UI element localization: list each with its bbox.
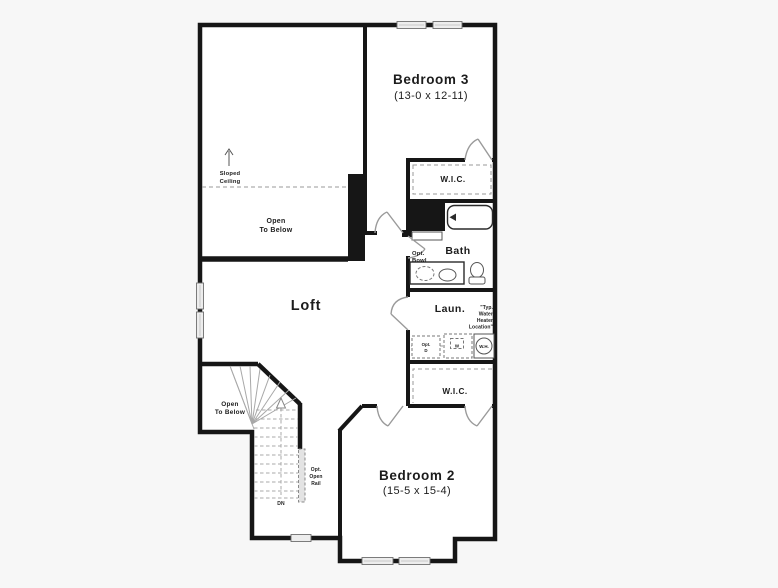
open-to-below-lower-2: To Below bbox=[215, 409, 245, 416]
bedroom3-dims: (13-0 x 12-11) bbox=[394, 90, 468, 102]
bedroom2-label: Bedroom 2 bbox=[379, 468, 455, 483]
laundry-fixtures: Opt. D W W.H. bbox=[411, 334, 494, 358]
floor-plan-page: DN Opt. D W W.H. bbox=[0, 0, 778, 588]
stair-down-label: DN bbox=[277, 501, 285, 507]
bath-label: Bath bbox=[445, 245, 470, 257]
floor-plan-image: DN Opt. D W W.H. bbox=[0, 0, 778, 588]
stair-rail bbox=[299, 449, 306, 502]
laundry-label: Laun. bbox=[435, 303, 466, 315]
opt-bowl-label-1: Opt. bbox=[412, 251, 425, 257]
linen-shelf bbox=[412, 232, 442, 240]
water-heater-note-4: Location" bbox=[469, 325, 494, 331]
water-heater-note-1: "Typ. bbox=[480, 305, 493, 311]
open-to-below-upper-1: Open bbox=[266, 218, 285, 225]
opt-dryer-label-2: D bbox=[424, 348, 427, 353]
wall-chase bbox=[348, 174, 365, 261]
bedroom3-label: Bedroom 3 bbox=[393, 72, 469, 87]
water-heater-label: W.H. bbox=[479, 344, 489, 349]
opt-bowl-label-2: Bowl bbox=[412, 258, 427, 264]
toilet bbox=[469, 263, 485, 285]
opt-dryer-label-1: Opt. bbox=[422, 342, 431, 347]
open-to-below-lower-1: Open bbox=[221, 401, 239, 408]
bedroom2-dims: (15-5 x 15-4) bbox=[383, 485, 451, 497]
plumbing-wall bbox=[406, 203, 445, 231]
optional-dryer-box bbox=[412, 336, 440, 358]
wic-upper-label: W.I.C. bbox=[440, 175, 465, 184]
water-heater-note-3: Heater bbox=[477, 318, 493, 324]
wic-lower-label: W.I.C. bbox=[442, 387, 467, 396]
water-heater-note-2: Water bbox=[479, 312, 493, 318]
sloped-ceiling-label-2: Ceiling bbox=[220, 179, 241, 185]
opt-open-rail-3: Rail bbox=[311, 481, 321, 487]
optional-bowl-sink bbox=[416, 267, 434, 281]
loft-label: Loft bbox=[291, 298, 322, 314]
open-to-below-upper-2: To Below bbox=[260, 227, 293, 234]
window bbox=[291, 535, 311, 542]
opt-open-rail-1: Opt. bbox=[311, 467, 322, 473]
sink-bowl bbox=[439, 269, 456, 281]
sloped-ceiling-label-1: Sloped bbox=[220, 171, 241, 177]
opt-open-rail-2: Open bbox=[309, 474, 322, 480]
wall-nub bbox=[402, 230, 412, 237]
